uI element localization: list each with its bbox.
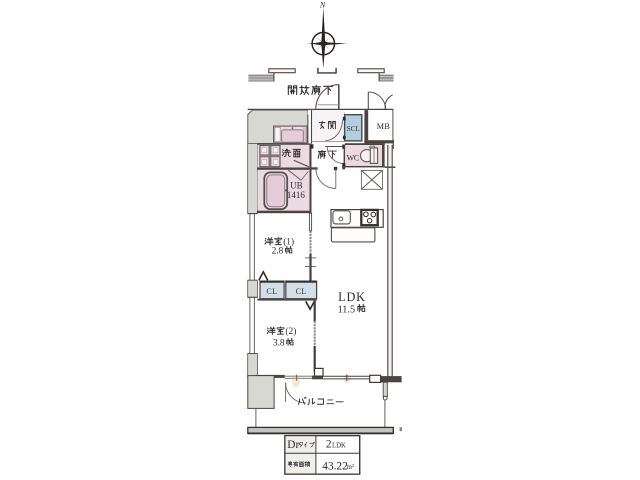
svg-text:Dr: Dr <box>287 439 299 451</box>
svg-text:SCL: SCL <box>347 125 360 133</box>
svg-text:CL: CL <box>266 287 277 296</box>
svg-text:(2): (2) <box>285 326 296 337</box>
svg-text:m²: m² <box>347 463 355 471</box>
svg-text:(1): (1) <box>283 237 294 248</box>
svg-text:2.8: 2.8 <box>272 247 284 257</box>
svg-text:43.22: 43.22 <box>322 460 348 472</box>
svg-text:3.8: 3.8 <box>273 339 285 349</box>
svg-text:MB: MB <box>377 122 391 131</box>
svg-text:1416: 1416 <box>287 190 306 200</box>
svg-text:WC: WC <box>347 154 359 163</box>
svg-text:2: 2 <box>326 439 332 451</box>
svg-text:N: N <box>319 1 326 10</box>
svg-text:CL: CL <box>296 287 307 296</box>
svg-text:LDK: LDK <box>332 442 346 449</box>
svg-text:11.5: 11.5 <box>338 304 355 315</box>
svg-text:LDK: LDK <box>338 290 366 304</box>
